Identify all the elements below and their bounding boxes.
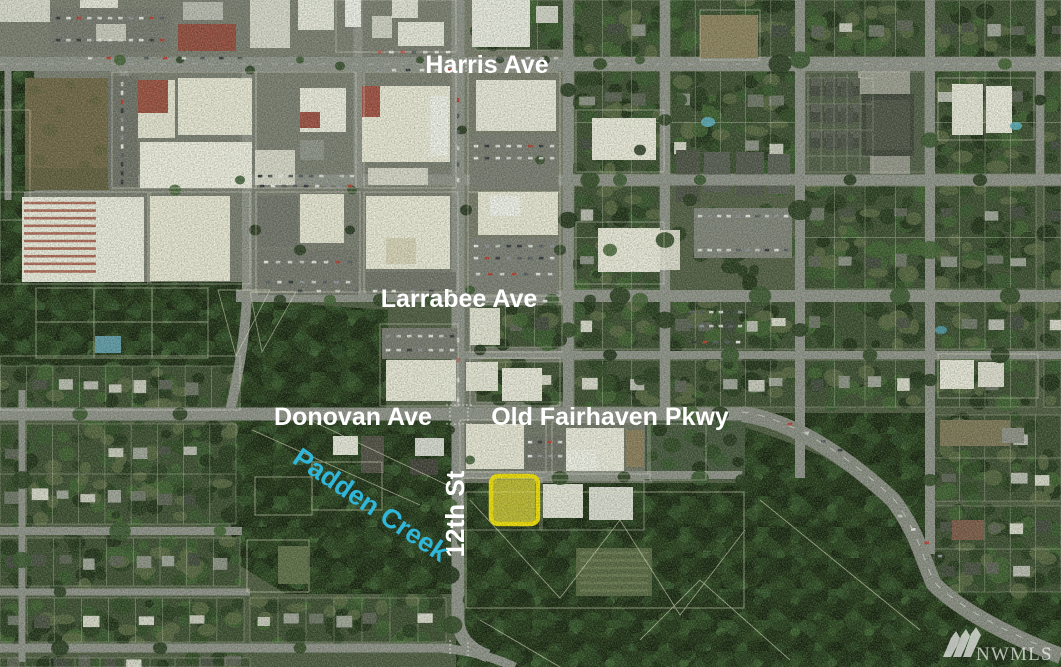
svg-text:NWMLS: NWMLS	[976, 644, 1053, 665]
svg-text:Old Fairhaven Pkwy: Old Fairhaven Pkwy	[491, 403, 729, 431]
svg-text:Harris Ave: Harris Ave	[425, 51, 548, 79]
svg-text:Donovan Ave: Donovan Ave	[274, 403, 432, 431]
svg-text:Larrabee Ave: Larrabee Ave	[381, 285, 538, 313]
